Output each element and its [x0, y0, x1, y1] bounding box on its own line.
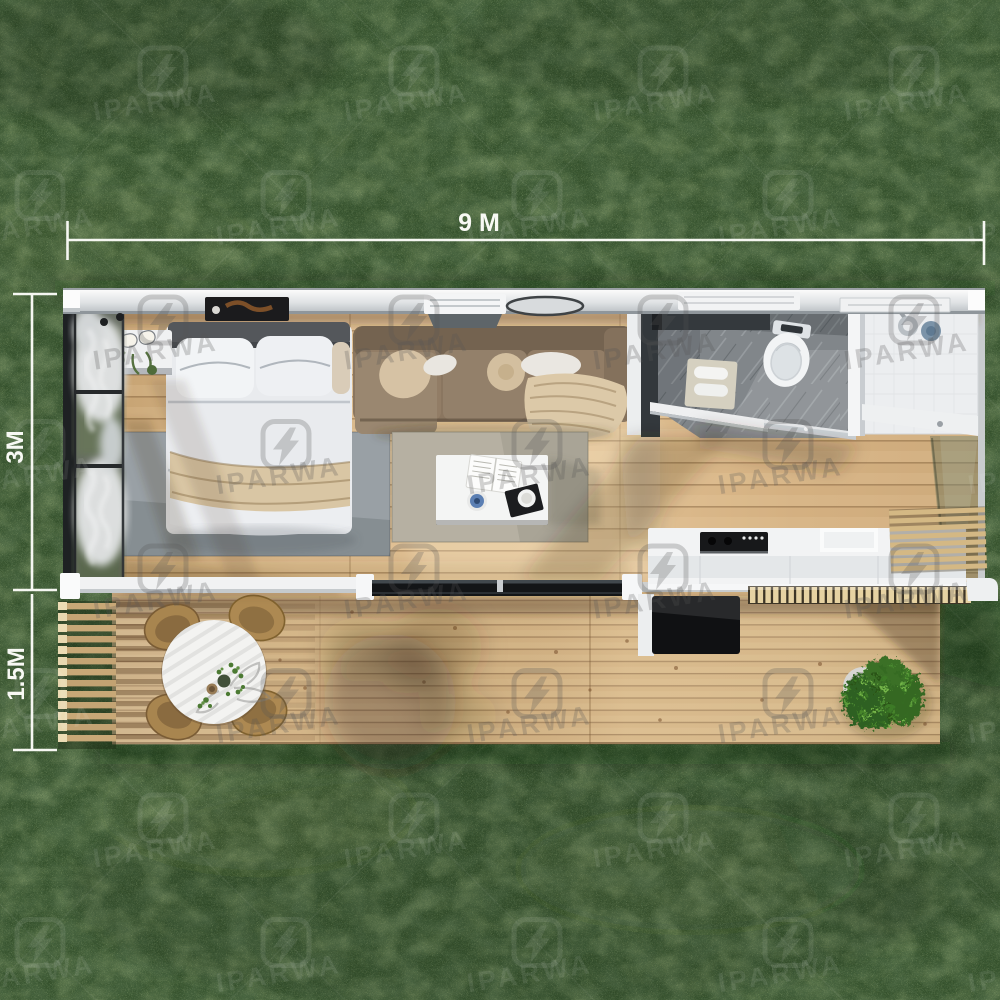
svg-text:3M: 3M [2, 430, 29, 463]
svg-text:1.5M: 1.5M [3, 647, 30, 700]
svg-text:9 M: 9 M [458, 209, 500, 237]
